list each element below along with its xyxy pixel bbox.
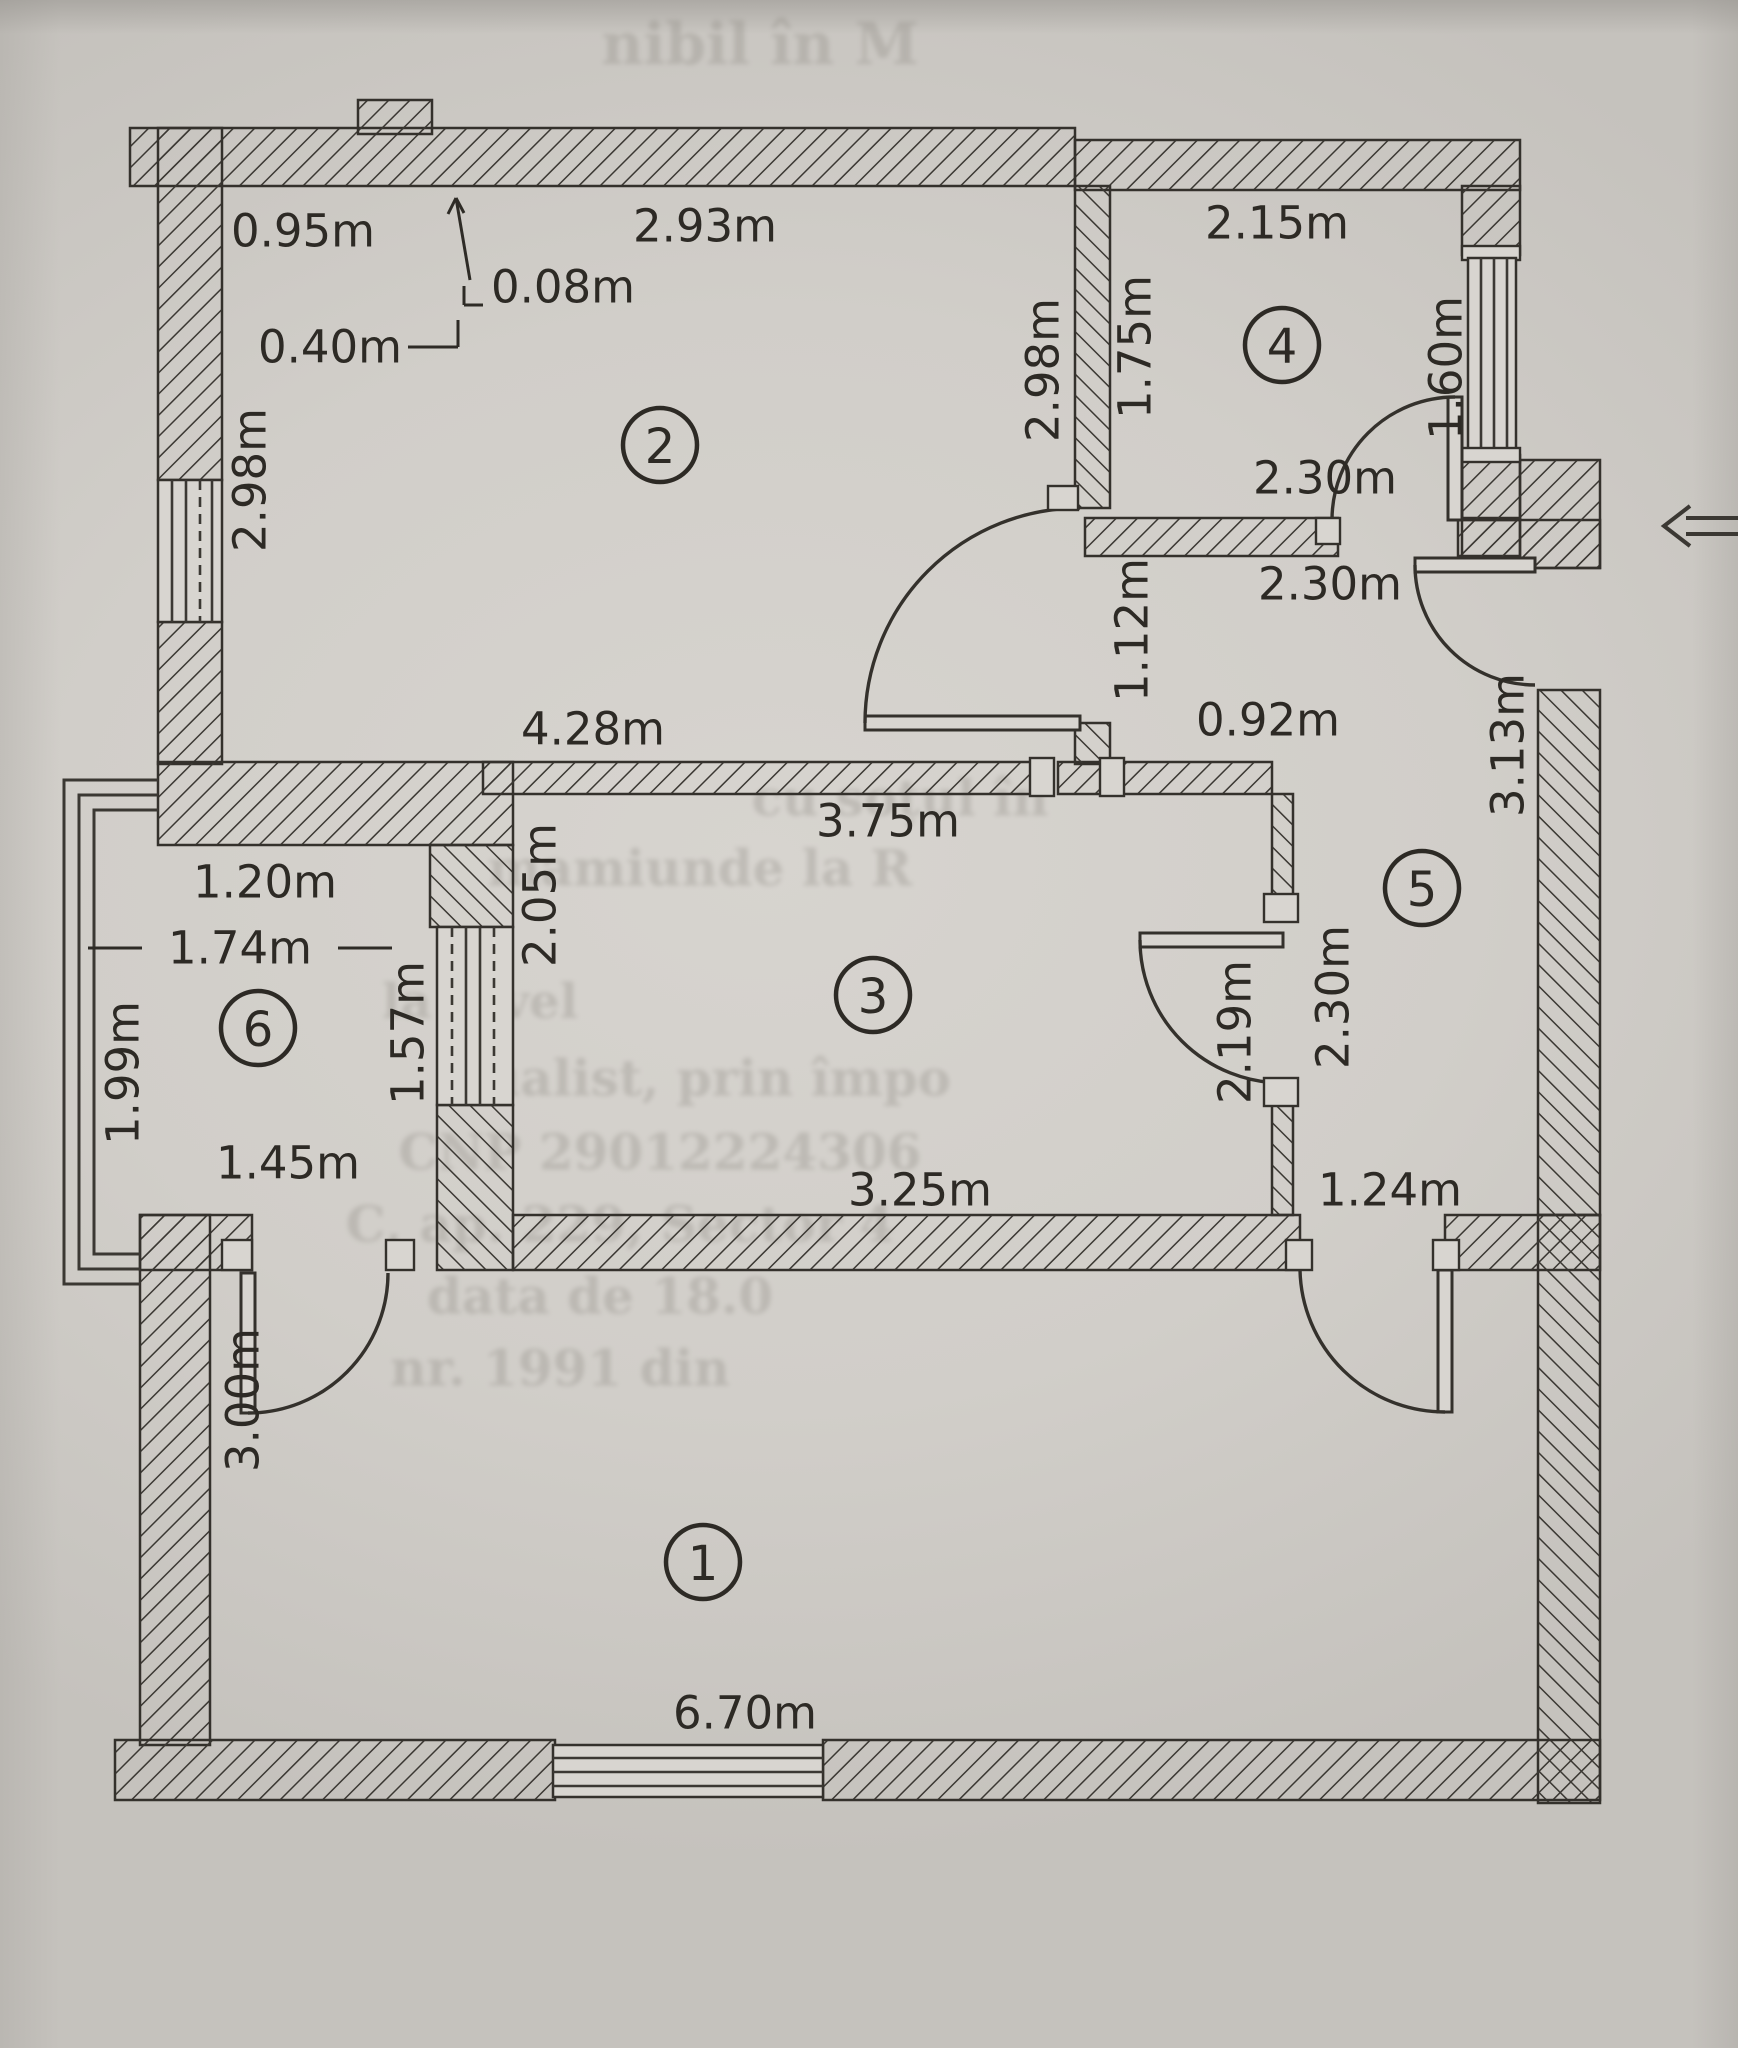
dim-room4-bottom-outer: 2.30m <box>1258 558 1402 611</box>
wall-balcony-room3-lower <box>437 1105 513 1270</box>
room-label-3: 3 <box>836 958 910 1032</box>
floor-plan: nibil în M cu soțul în mamiunde la R la … <box>0 0 1738 2048</box>
room-label-1: 1 <box>666 1525 740 1599</box>
dim-room4-left-height: 1.75m <box>1109 275 1162 419</box>
dim-room2-bottom: 4.28m <box>521 703 665 756</box>
wall-room2-room3-left <box>483 762 1040 794</box>
dim-room2-right-height: 2.98m <box>1017 298 1070 442</box>
room-label-5: 5 <box>1385 851 1459 925</box>
dim-room4-window: 1.60m <box>1420 296 1473 440</box>
wall-top-right <box>1075 140 1520 190</box>
wall-right-lower-a <box>1538 690 1600 1215</box>
wall-room2-room3-right <box>1058 762 1272 794</box>
room-number-3: 3 <box>858 969 889 1025</box>
dim-room3-left-height: 2.05m <box>514 823 567 967</box>
dim-room3-right-height: 2.30m <box>1307 925 1360 1069</box>
entry-arrow-icon <box>1664 506 1738 546</box>
dim-room4-top: 2.15m <box>1205 197 1349 250</box>
wall-top-bump <box>358 100 432 134</box>
dim-hall-wall-segment: 0.92m <box>1196 694 1340 747</box>
wall-left-mid <box>158 622 222 764</box>
dim-room3-bottom: 3.25m <box>848 1164 992 1217</box>
dim-room3-door: 2.19m <box>1209 960 1262 1104</box>
wall-room1-left <box>140 1215 210 1745</box>
dim-wall-offset: 0.08m <box>491 261 635 314</box>
dim-hall-right-height: 3.13m <box>1482 673 1535 817</box>
wall-right-lower-b <box>1538 1215 1600 1803</box>
door-entry <box>1415 558 1535 685</box>
dim-top-left-step: 0.40m <box>258 321 402 374</box>
dim-room2-left-height: 2.98m <box>224 408 277 552</box>
wall-room4-right-top <box>1462 186 1520 255</box>
dim-room2-top: 2.93m <box>633 200 777 253</box>
dim-balcony-top: 1.20m <box>193 856 337 909</box>
bleed-line: nibil în M <box>601 10 919 78</box>
dim-room1-bottom: 6.70m <box>673 1687 817 1740</box>
dim-room3-top: 3.75m <box>816 795 960 848</box>
room-label-2: 2 <box>623 408 697 482</box>
room-number-2: 2 <box>645 419 676 475</box>
room-label-4: 4 <box>1245 308 1319 382</box>
wall-room4-right-bottom <box>1462 455 1520 520</box>
dim-room1-left-height: 3.00m <box>217 1328 270 1472</box>
wall-room4-bottom <box>1085 518 1338 556</box>
wall-room2-right <box>1075 186 1110 508</box>
scanned-page: nibil în M cu soțul în mamiunde la R la … <box>0 0 1738 2048</box>
door-room2-hall <box>865 508 1080 730</box>
dim-balcony-inner-width: 1.74m <box>168 922 312 975</box>
window-room1-bottom <box>553 1745 823 1797</box>
wall-left-upper <box>158 128 222 480</box>
wall-top-left <box>130 128 1075 186</box>
dim-hall-top-segment: 1.12m <box>1106 558 1159 702</box>
wall-band-mid <box>513 1215 1300 1270</box>
room-label-6: 6 <box>221 991 295 1065</box>
dim-room4-bottom-inner: 2.30m <box>1253 452 1397 505</box>
wall-right-step2 <box>1520 460 1600 568</box>
dim-top-left-width: 0.95m <box>231 205 375 258</box>
room-number-6: 6 <box>243 1002 274 1058</box>
door-hall-room1 <box>1300 1270 1452 1412</box>
dim-balcony-bottom: 1.45m <box>216 1137 360 1190</box>
room-number-4: 4 <box>1267 319 1298 375</box>
wall-balcony-corner <box>430 845 513 927</box>
wall-balcony-top <box>158 762 513 845</box>
room-number-1: 1 <box>688 1536 719 1592</box>
wall-bottom-left <box>115 1740 555 1800</box>
bleed-line: data de 18.0 <box>427 1267 773 1326</box>
dim-hall-bottom-segment: 1.24m <box>1318 1164 1462 1217</box>
window-room2-left <box>158 480 222 622</box>
dim-balcony-left-height: 1.99m <box>97 1001 150 1145</box>
bleed-line: dualist, prin împo <box>449 1049 951 1108</box>
bleed-line: nr. 1991 din <box>390 1339 730 1398</box>
wall-band-right <box>1445 1215 1600 1270</box>
dimension-labels: 0.95m 0.40m 0.08m 2.93m 2.15m 2.30m 2.30… <box>97 197 1535 1740</box>
window-balcony-room3 <box>437 927 513 1105</box>
room-number-5: 5 <box>1407 862 1438 918</box>
wall-bottom-right <box>823 1740 1600 1800</box>
dim-balcony-window: 1.57m <box>382 961 435 1105</box>
